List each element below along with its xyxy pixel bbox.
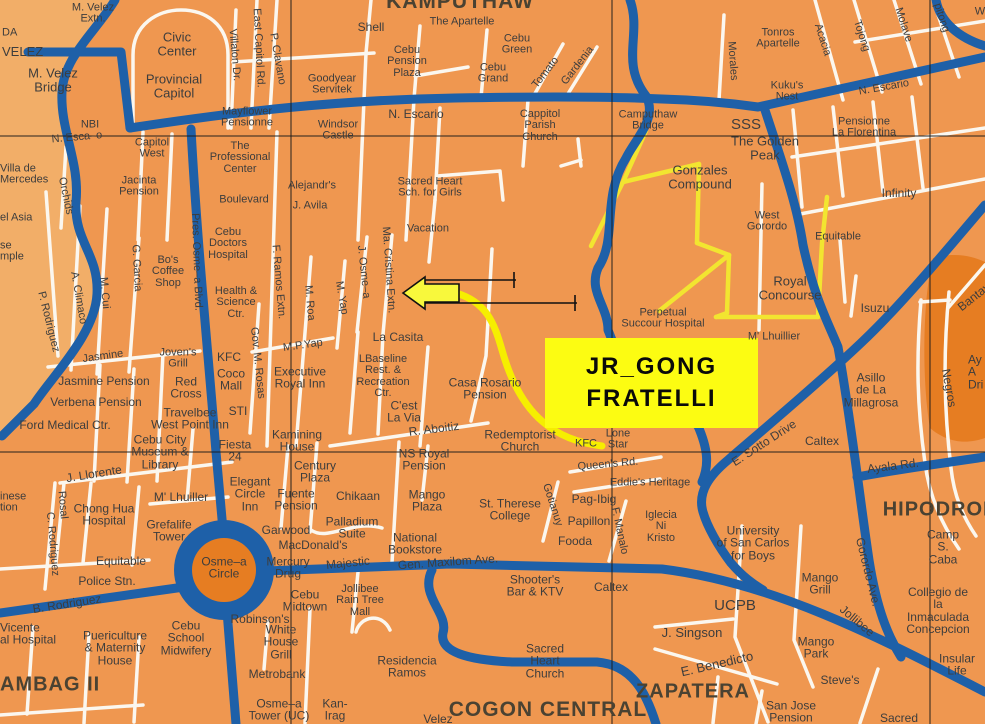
road-n-escario (130, 57, 985, 128)
highlight-callout: JR_GONG FRATELLI (545, 338, 758, 428)
blue-roads (0, 0, 985, 724)
camputhaw-stream (595, 0, 649, 345)
highlight-line2: FRATELLI (586, 385, 716, 413)
map-canvas: JR_GONG FRATELLI M. Velez Extn.DAVELEZCi… (0, 0, 985, 724)
road-osmena-blvd (191, 129, 223, 530)
road-gorordo (764, 107, 901, 657)
highlight-line1: JR_GONG (586, 353, 717, 381)
road-b-rodriguez (0, 587, 184, 613)
map-graphics (0, 0, 985, 724)
dark-area (924, 255, 985, 442)
road-ayala (857, 457, 985, 477)
osmena-circle-center (192, 538, 256, 602)
cogon-stream (429, 570, 656, 724)
